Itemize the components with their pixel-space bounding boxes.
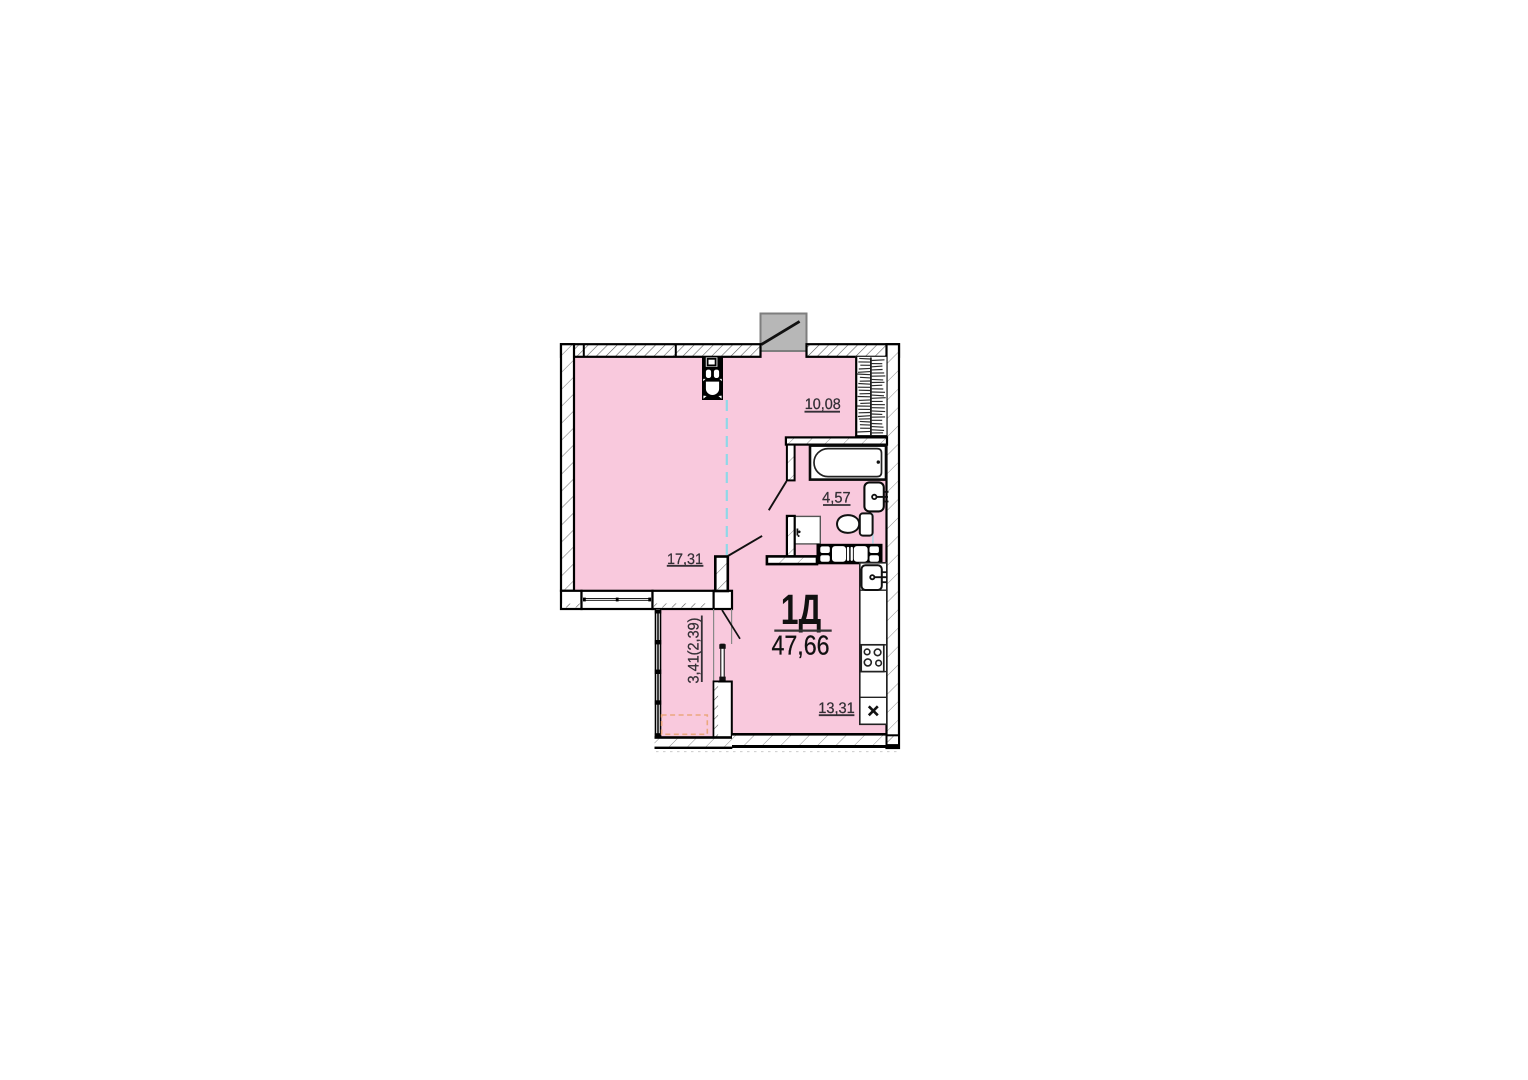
svg-text:4,57: 4,57 xyxy=(822,490,851,507)
svg-text:3,41(2,39): 3,41(2,39) xyxy=(686,618,703,684)
svg-text:10,08: 10,08 xyxy=(805,396,841,413)
svg-text:1Д: 1Д xyxy=(781,587,822,634)
svg-text:47,66: 47,66 xyxy=(772,629,830,660)
